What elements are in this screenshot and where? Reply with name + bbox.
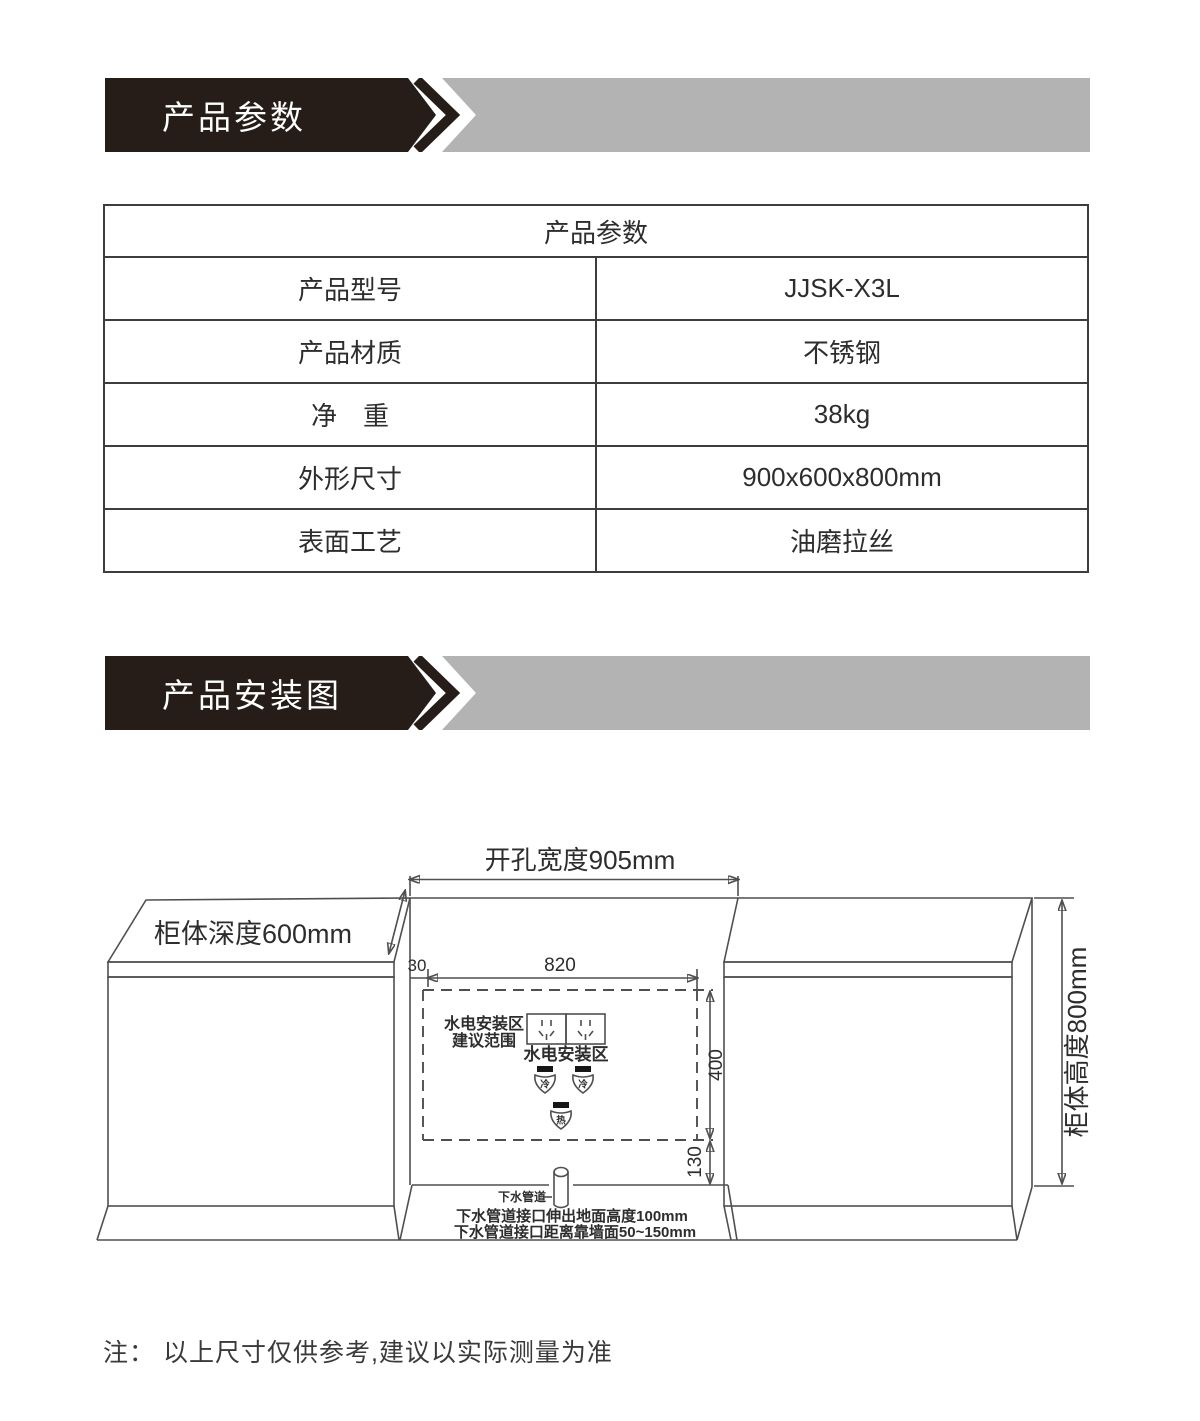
table-row: 外形尺寸 900x600x800mm [104, 446, 1088, 509]
table-row: 净 重 38kg [104, 383, 1088, 446]
row-value: 不锈钢 [596, 320, 1088, 383]
row-value: 油磨拉丝 [596, 509, 1088, 572]
opening-recess [97, 898, 1017, 1240]
row-label: 表面工艺 [104, 509, 596, 572]
dim-cabinet-height-label: 柜体高度800mm [1062, 947, 1092, 1138]
footnote: 注： 以上尺寸仅供参考,建议以实际测量为准 [103, 1333, 613, 1369]
dim-820-label: 820 [544, 955, 576, 976]
left-cabinet [97, 898, 410, 1240]
hot-valve-label: 热 [556, 1115, 566, 1127]
section-title-install: 产品安装图 [105, 669, 342, 717]
section-banner-params: 产品参数 [0, 78, 1200, 152]
row-label: 净 重 [104, 383, 596, 446]
pipe-note-2: 下水管道接口距离靠墙面50~150mm [454, 1223, 696, 1241]
banner-black-shape: 产品安装图 [105, 656, 436, 730]
hot-valve-icon: 热 [551, 1102, 571, 1129]
cold-valve-icon: 冷 [535, 1066, 555, 1093]
section-banner-install: 产品安装图 [0, 656, 1200, 730]
pipe-note-1: 下水管道接口伸出地面高度100mm [456, 1207, 688, 1225]
dim-30-label: 30 [408, 956, 427, 975]
dim-opening-width-label: 开孔宽度905mm [485, 845, 676, 875]
table-header-row: 产品参数 [104, 205, 1088, 257]
power-outlet-icon [527, 1014, 566, 1044]
pipe-label: 下水管道 [498, 1189, 546, 1204]
dim-cabinet-height: 柜体高度800mm [1034, 898, 1092, 1186]
row-label: 产品型号 [104, 257, 596, 320]
banner-gray-bar [442, 656, 1090, 730]
dim-400-130: 400 130 [685, 992, 727, 1183]
cold-valve-icon: 冷 [573, 1066, 593, 1093]
installation-diagram: 柜体深度600mm 开孔宽度905mm 30 820 400 [80, 840, 1120, 1265]
row-value: JJSK-X3L [596, 257, 1088, 320]
zone-note-line2: 建议范围 [452, 1031, 516, 1050]
zone-label: 水电安装区 [524, 1044, 609, 1064]
dim-cabinet-depth-label: 柜体深度600mm [154, 919, 352, 949]
table-row: 产品型号 JJSK-X3L [104, 257, 1088, 320]
power-outlet-icon [566, 1014, 605, 1044]
dim-opening-width: 开孔宽度905mm [410, 845, 738, 896]
banner-gray-bar [442, 78, 1090, 152]
right-cabinet [724, 898, 1032, 1240]
zone-note-line1: 水电安装区 [444, 1014, 524, 1033]
row-label: 产品材质 [104, 320, 596, 383]
table-title: 产品参数 [104, 205, 1088, 257]
drain-pipe-icon [554, 1168, 568, 1208]
dim-130-label: 130 [685, 1146, 706, 1178]
row-value: 900x600x800mm [596, 446, 1088, 509]
spec-table: 产品参数 产品型号 JJSK-X3L 产品材质 不锈钢 净 重 38kg 外形尺… [103, 204, 1089, 573]
table-row: 产品材质 不锈钢 [104, 320, 1088, 383]
cold-valve-label: 冷 [578, 1079, 588, 1091]
dim-30-820: 30 820 [408, 955, 697, 990]
banner-black-shape: 产品参数 [105, 78, 436, 152]
table-row: 表面工艺 油磨拉丝 [104, 509, 1088, 572]
section-title-params: 产品参数 [105, 91, 306, 139]
row-value: 38kg [596, 383, 1088, 446]
cold-valve-label: 冷 [540, 1079, 550, 1091]
install-zone-dashed-area [423, 990, 713, 1140]
row-label: 外形尺寸 [104, 446, 596, 509]
